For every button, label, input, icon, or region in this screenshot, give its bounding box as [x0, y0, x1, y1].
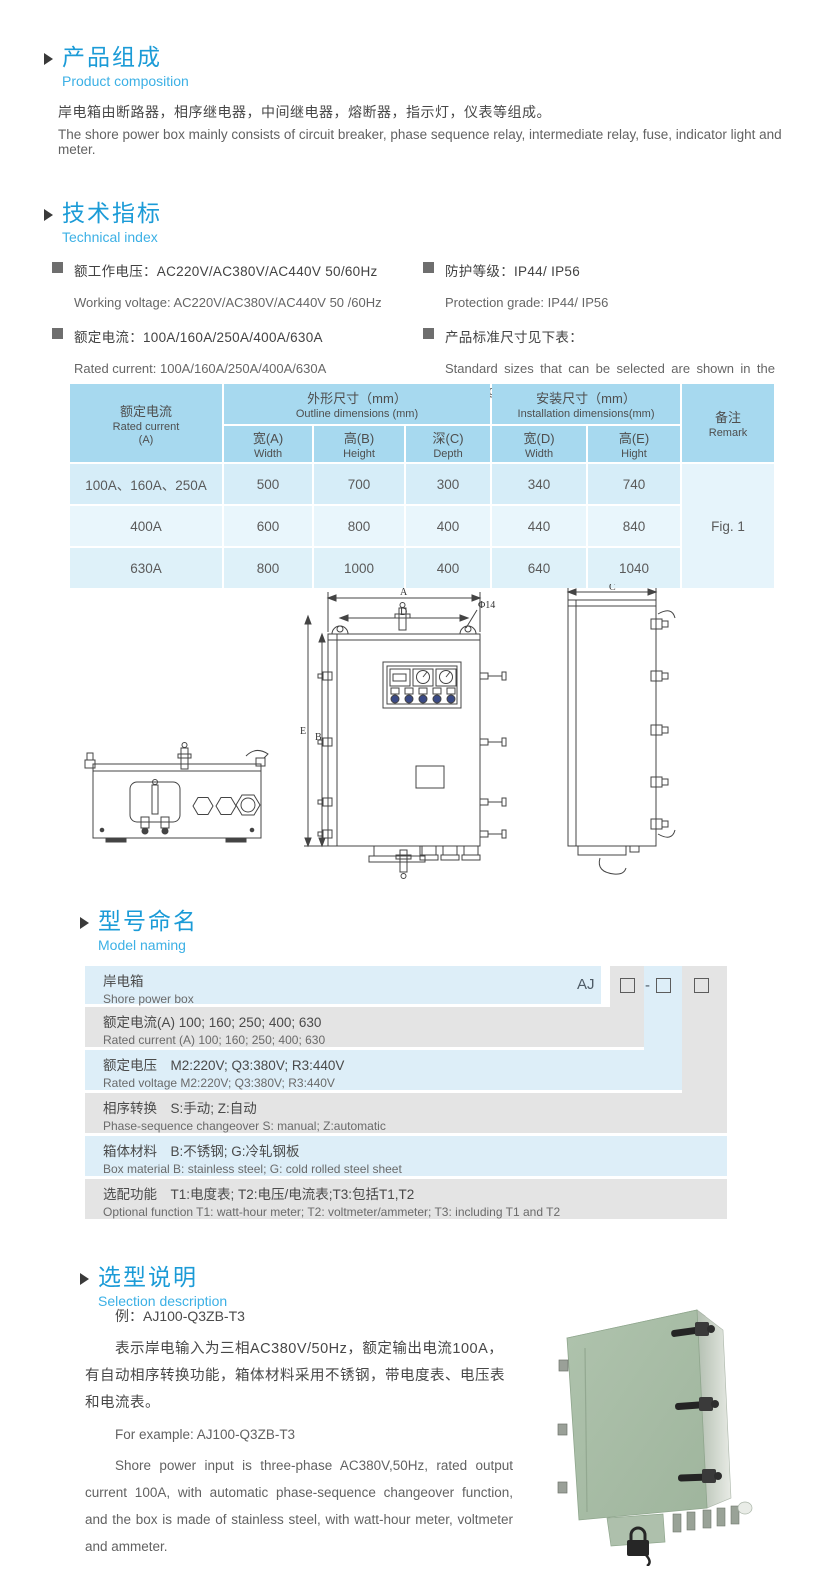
cell-value: 1000 [314, 548, 404, 588]
table-row: 630A 800 1000 400 640 1040 [70, 548, 774, 588]
dim-label-phi14: Φ14 [478, 600, 495, 611]
cell-value: 1040 [588, 548, 680, 588]
naming-row-en: Rated current (A) 100; 160; 250; 400; 63… [103, 1033, 644, 1047]
code-prefix: AJ [577, 976, 595, 993]
cell-value: 800 [224, 548, 312, 588]
cell-value: 600 [224, 506, 312, 546]
naming-row-en: Shore power box [103, 992, 601, 1006]
table-row: 400A 600 800 400 440 840 [70, 506, 774, 546]
naming-row-box-material: 箱体材料 B:不锈钢; G:冷轧钢板 Box material B: stain… [85, 1136, 727, 1176]
section-selection-header: 选型说明 Selection description [80, 1264, 227, 1309]
cell-value: 340 [492, 464, 586, 504]
selection-text-block: 例：AJ100-Q3ZB-T3 表示岸电输入为三相AC380V/50Hz，额定输… [85, 1306, 513, 1560]
spec-zh: 额定电流：100A/160A/250A/400A/630A [74, 330, 323, 345]
code-box-1 [620, 978, 635, 993]
code-dash: - [645, 977, 650, 994]
cell-current: 400A [70, 506, 222, 546]
header-outline-dimensions: 外形尺寸（mm） Outline dimensions (mm) [224, 384, 490, 424]
dim-label-c: C [609, 584, 616, 593]
cell-value: 740 [588, 464, 680, 504]
cell-value: 640 [492, 548, 586, 588]
cell-value: 700 [314, 464, 404, 504]
section-title-zh: 技术指标 [62, 200, 162, 226]
naming-row-en: Box material B: stainless steel; G: cold… [103, 1162, 727, 1176]
product-photo [545, 1296, 800, 1571]
naming-row-phase-sequence: 相序转换 S:手动; Z:自动 Phase-sequence changeove… [85, 1093, 727, 1133]
spec-en: Rated current: 100A/160A/250A/400A/630A [52, 358, 404, 380]
spec-en: Protection grade: IP44/ IP56 [423, 292, 775, 314]
section-title-zh: 产品组成 [62, 44, 189, 70]
spec-item: 额定电流：100A/160A/250A/400A/630A [52, 326, 404, 347]
header-hight-e: 高(E)Hight [588, 426, 680, 462]
cell-current: 100A、160A、250A [70, 464, 222, 504]
section-bullet-icon [44, 209, 53, 221]
technical-drawing: A D Φ14 [78, 584, 784, 884]
dim-label-e: E [300, 726, 306, 737]
section-title-en: Product composition [62, 73, 189, 89]
spec-item: 产品标准尺寸见下表： [423, 326, 775, 347]
section-bullet-icon [44, 53, 53, 65]
naming-row-en: Phase-sequence changeover S: manual; Z:a… [103, 1119, 727, 1133]
dimension-table: 额定电流 Rated current (A) 外形尺寸（mm） Outline … [68, 382, 776, 590]
section-title-en: Technical index [62, 229, 162, 245]
naming-row-zh: 额定电压 M2:220V; Q3:380V; R3:440V [103, 1054, 682, 1074]
square-bullet-icon [52, 262, 63, 273]
section-bullet-icon [80, 917, 89, 929]
dim-label-a: A [400, 587, 408, 598]
spec-zh: 额工作电压：AC220V/AC380V/AC440V 50/60Hz [74, 264, 378, 279]
cell-value: 800 [314, 506, 404, 546]
spec-list-left: 额工作电压：AC220V/AC380V/AC440V 50/60Hz Worki… [52, 260, 404, 392]
header-height-b: 高(B)Height [314, 426, 404, 462]
cell-current: 630A [70, 548, 222, 588]
selection-example-en: For example: AJ100-Q3ZB-T3 [85, 1427, 513, 1442]
code-box-3 [694, 978, 709, 993]
naming-row-rated-voltage: 额定电压 M2:220V; Q3:380V; R3:440V Rated vol… [85, 1050, 682, 1090]
cell-value: 840 [588, 506, 680, 546]
section-title-zh: 选型说明 [98, 1264, 227, 1290]
naming-row-en: Optional function T1: watt-hour meter; T… [103, 1205, 727, 1219]
table-row: 100A、160A、250A 500 700 300 340 740 Fig. … [70, 464, 774, 504]
naming-row-optional-function: 选配功能 T1:电度表; T2:电压/电流表;T3:包括T1,T2 Option… [85, 1179, 727, 1219]
naming-row-zh: 箱体材料 B:不锈钢; G:冷轧钢板 [103, 1140, 727, 1160]
header-rated-current: 额定电流 Rated current (A) [70, 384, 222, 462]
cell-value: 500 [224, 464, 312, 504]
header-width-d: 宽(D)Width [492, 426, 586, 462]
naming-row-zh: 额定电流(A) 100; 160; 250; 400; 630 [103, 1011, 644, 1031]
naming-row-zh: 相序转换 S:手动; Z:自动 [103, 1097, 727, 1117]
spec-zh: 产品标准尺寸见下表： [445, 330, 583, 345]
header-remark: 备注 Remark [682, 384, 774, 462]
selection-body-zh: 表示岸电输入为三相AC380V/50Hz，额定输出电流100A，有自动相序转换功… [85, 1336, 513, 1417]
section-technical-header: 技术指标 Technical index [44, 200, 162, 245]
spec-en: Working voltage: AC220V/AC380V/AC440V 50… [52, 292, 404, 314]
code-box-2 [656, 978, 671, 993]
section-title-en: Model naming [98, 937, 198, 953]
selection-example-zh: 例：AJ100-Q3ZB-T3 [85, 1306, 513, 1326]
naming-row-zh: 选配功能 T1:电度表; T2:电压/电流表;T3:包括T1,T2 [103, 1183, 727, 1203]
spec-item: 额工作电压：AC220V/AC380V/AC440V 50/60Hz [52, 260, 404, 281]
section-bullet-icon [80, 1273, 89, 1285]
cell-value: 440 [492, 506, 586, 546]
selection-body-en: Shore power input is three-phase AC380V,… [85, 1452, 513, 1560]
cell-value: 300 [406, 464, 490, 504]
composition-body-zh: 岸电箱由断路器，相序继电器，中间继电器，熔断器，指示灯，仪表等组成。 [58, 102, 778, 122]
cell-value: 400 [406, 548, 490, 588]
composition-body-en: The shore power box mainly consists of c… [58, 127, 798, 157]
spec-zh: 防护等级：IP44/ IP56 [445, 264, 580, 279]
naming-row-rated-current: 额定电流(A) 100; 160; 250; 400; 630 Rated cu… [85, 1007, 644, 1047]
section-title-zh: 型号命名 [98, 908, 198, 934]
header-installation-dimensions: 安装尺寸（mm） Installation dimensions(mm) [492, 384, 680, 424]
square-bullet-icon [423, 262, 434, 273]
header-width-a: 宽(A)Width [224, 426, 312, 462]
cell-remark: Fig. 1 [682, 464, 774, 588]
section-naming-header: 型号命名 Model naming [80, 908, 198, 953]
header-depth-c: 深(C)Depth [406, 426, 490, 462]
naming-row-shore-power-box: 岸电箱 Shore power box [85, 966, 601, 1004]
spec-item: 防护等级：IP44/ IP56 [423, 260, 775, 281]
cell-value: 400 [406, 506, 490, 546]
square-bullet-icon [52, 328, 63, 339]
model-naming-diagram: AJ - 岸电箱 Shore power box 额定电流(A) 100; 16… [85, 966, 745, 1222]
naming-row-zh: 岸电箱 [103, 970, 601, 990]
square-bullet-icon [423, 328, 434, 339]
section-composition-header: 产品组成 Product composition [44, 44, 189, 89]
dim-label-b: B [315, 732, 322, 743]
naming-row-en: Rated voltage M2:220V; Q3:380V; R3:440V [103, 1076, 682, 1090]
